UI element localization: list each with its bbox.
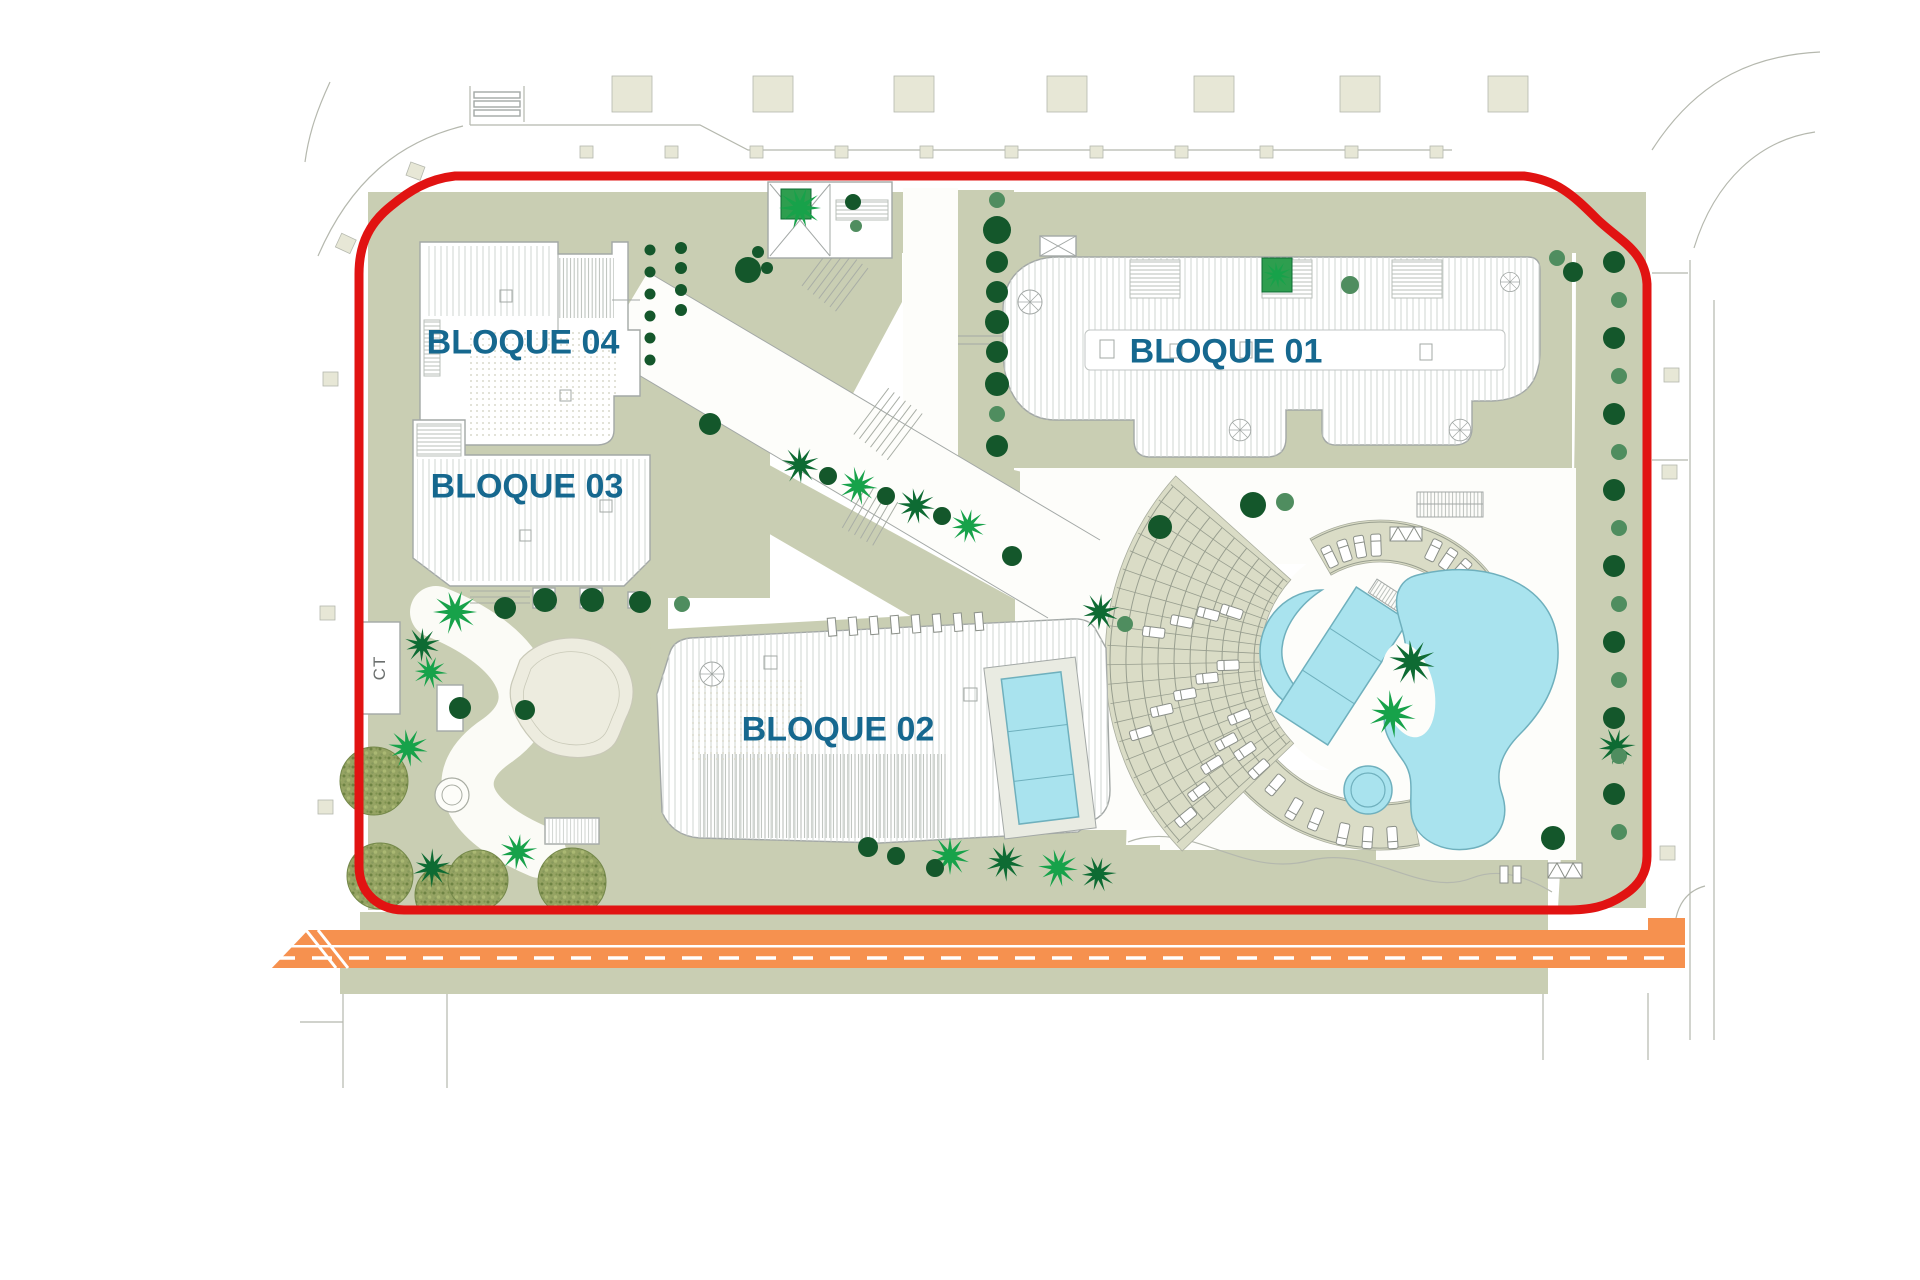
entrance-pavilion — [768, 182, 892, 258]
label-bloque-04: BLOQUE 04 — [427, 324, 620, 363]
label-ct: CT — [370, 656, 390, 681]
label-bloque-01: BLOQUE 01 — [1130, 333, 1323, 372]
site-plan-svg — [0, 0, 1920, 1280]
road-layer — [263, 912, 1685, 994]
label-bloque-02: BLOQUE 02 — [742, 711, 935, 750]
utility-box — [1040, 236, 1076, 256]
site-plan: BLOQUE 04 BLOQUE 03 BLOQUE 01 BLOQUE 02 … — [0, 0, 1920, 1280]
label-bloque-03: BLOQUE 03 — [431, 468, 624, 507]
